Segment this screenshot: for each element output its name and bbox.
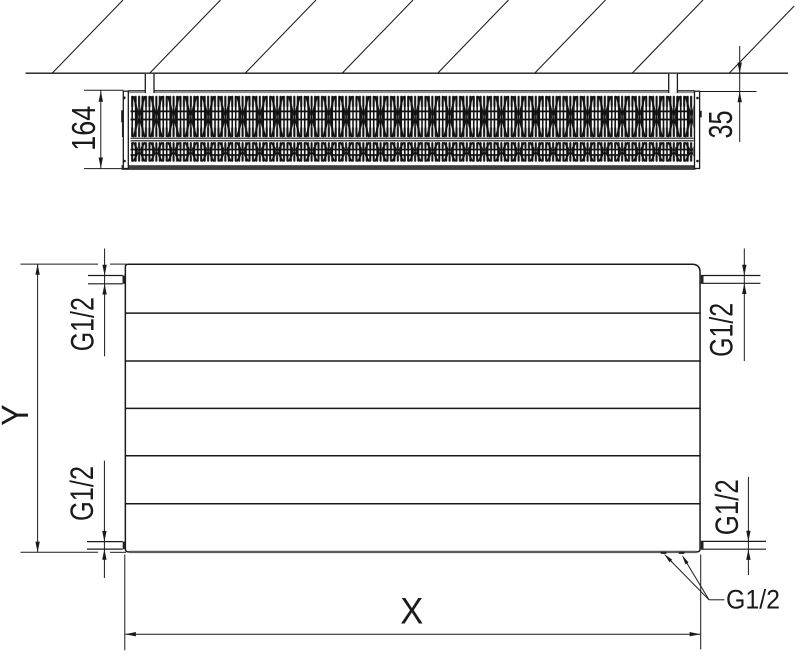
svg-text:G1/2: G1/2: [709, 479, 745, 535]
svg-text:35: 35: [702, 111, 739, 139]
svg-text:X: X: [400, 591, 423, 632]
svg-text:G1/2: G1/2: [704, 303, 740, 357]
svg-text:G1/2: G1/2: [64, 466, 100, 521]
svg-text:Y: Y: [0, 404, 37, 426]
svg-text:164: 164: [65, 106, 102, 151]
svg-text:G1/2: G1/2: [726, 584, 780, 614]
svg-text:G1/2: G1/2: [65, 297, 101, 351]
